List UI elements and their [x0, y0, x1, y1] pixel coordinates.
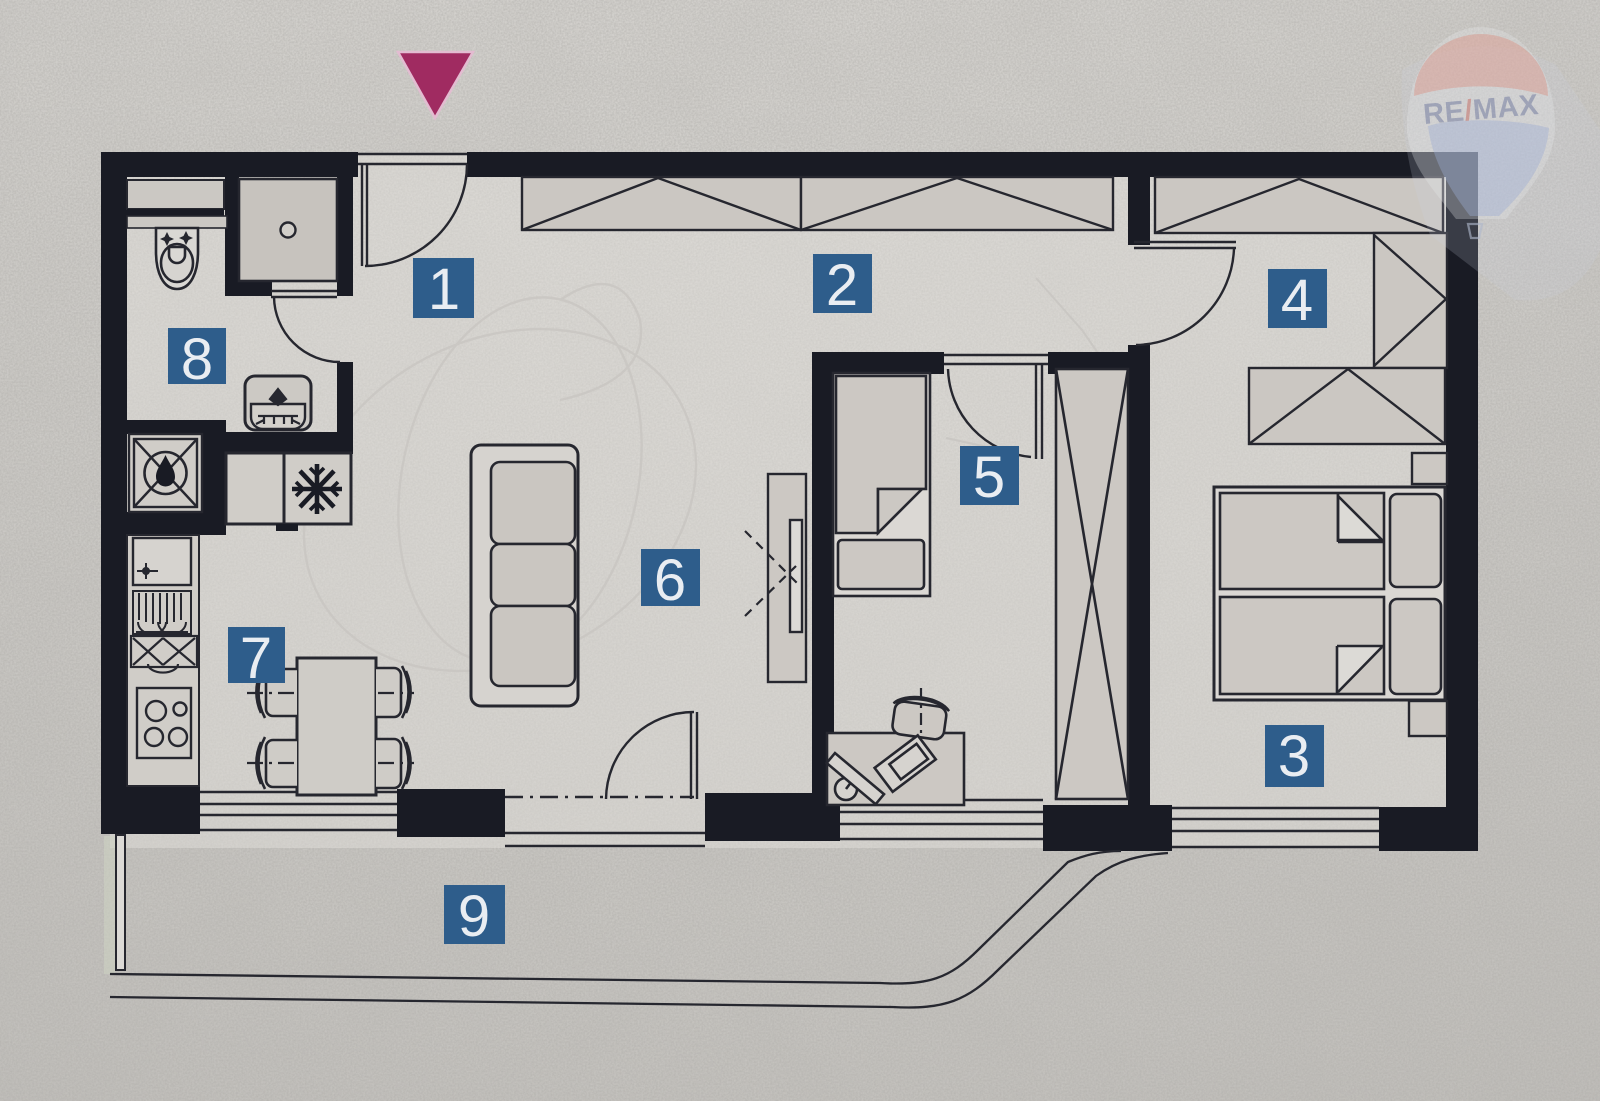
svg-text:2: 2 [826, 253, 858, 318]
svg-text:9: 9 [458, 884, 490, 949]
svg-text:3: 3 [1278, 724, 1310, 789]
svg-text:1: 1 [428, 257, 460, 322]
svg-text:7: 7 [240, 626, 272, 691]
svg-text:8: 8 [181, 327, 213, 392]
svg-text:6: 6 [654, 548, 686, 613]
svg-text:4: 4 [1281, 268, 1313, 333]
svg-text:5: 5 [973, 445, 1005, 510]
